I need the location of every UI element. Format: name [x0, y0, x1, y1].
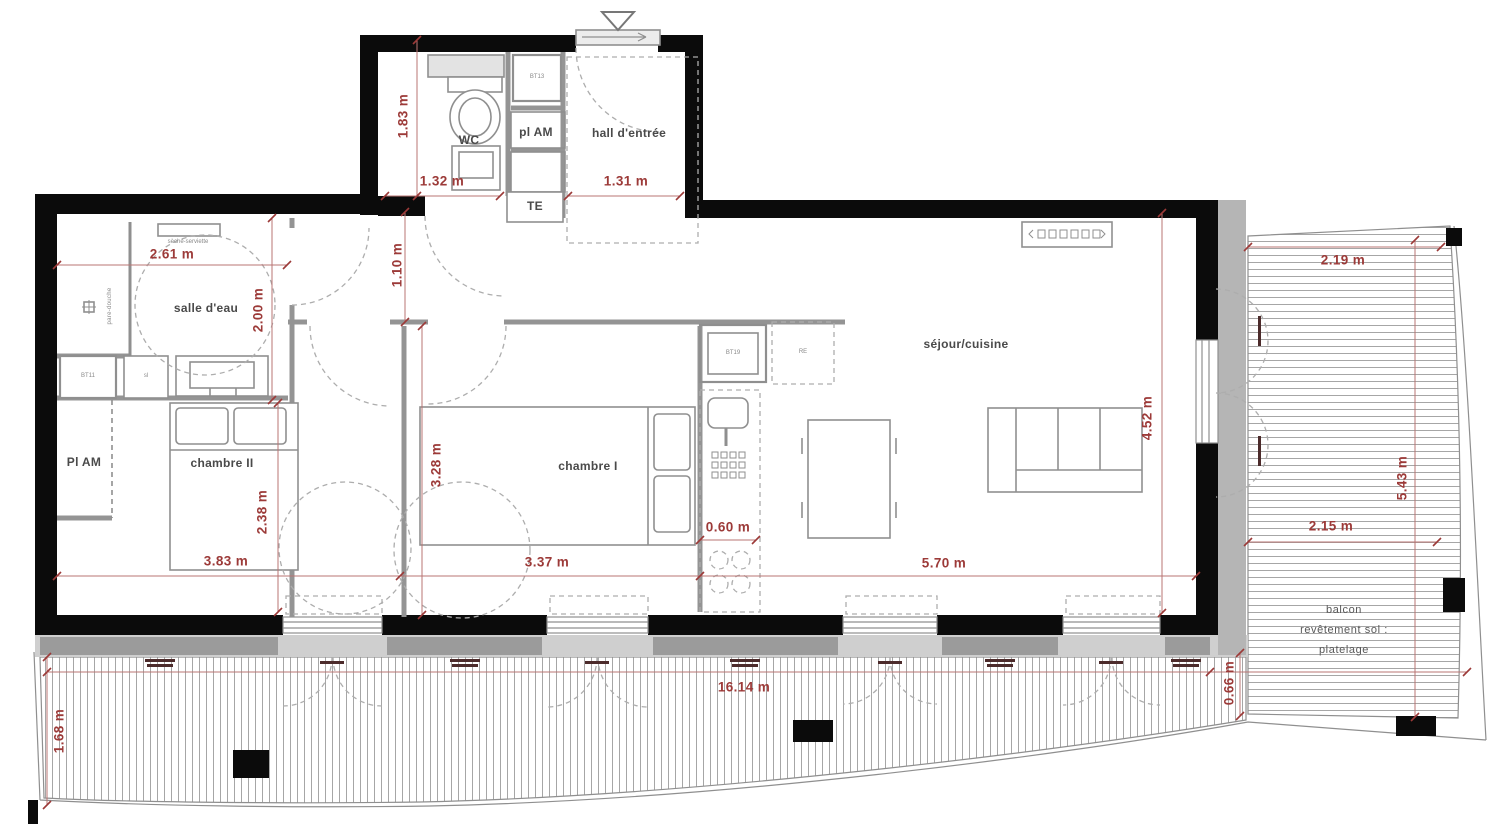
chambre2-door-swing [310, 326, 390, 406]
furniture [60, 12, 1142, 570]
tag-bt13: BT13 [530, 74, 544, 80]
room-label-pl-am-left: Pl AM [67, 455, 101, 469]
bed-chambre1 [420, 407, 695, 545]
label-pare-douche: pare-douche [107, 288, 113, 325]
tag-bt11: BT11 [81, 373, 95, 379]
floor-plan: WC pl AM hall d'entrée TE salle d'eau sè… [0, 0, 1500, 837]
floor-plan-drawing [0, 0, 1500, 837]
room-label-salle-deau: salle d'eau [174, 301, 238, 315]
dim-4-52: 4.52 m [1140, 396, 1155, 440]
label-balcon-2: revêtement sol : [1300, 624, 1388, 636]
dim-2-38: 2.38 m [255, 490, 270, 534]
dim-0-66: 0.66 m [1222, 661, 1237, 705]
room-label-sejour: séjour/cuisine [924, 337, 1009, 351]
dim-5-43: 5.43 m [1395, 456, 1410, 500]
entrance-arrow-icon [602, 12, 634, 30]
room-label-te: TE [527, 199, 543, 213]
room-label-chambre2: chambre II [190, 456, 253, 470]
dim-1-32: 1.32 m [420, 174, 464, 189]
label-balcon-3: platelage [1319, 644, 1369, 656]
entrance-door [576, 12, 660, 45]
dim-2-19: 2.19 m [1321, 253, 1365, 268]
label-balcon-1: balcon [1326, 604, 1362, 616]
dim-0-60: 0.60 m [706, 520, 750, 535]
entrance-door-swing [576, 48, 660, 132]
room-label-chambre1: chambre I [558, 459, 617, 473]
sofa [988, 408, 1142, 492]
dim-16-14: 16.14 m [718, 680, 770, 695]
dim-3-83: 3.83 m [204, 554, 248, 569]
tag-bt19: BT19 [726, 350, 740, 356]
tag-re: RE [799, 349, 807, 355]
dim-2-00: 2.00 m [251, 288, 266, 332]
dining-table [802, 420, 896, 538]
dim-1-31: 1.31 m [604, 174, 648, 189]
tag-sl: sl [144, 373, 148, 379]
dim-3-28: 3.28 m [429, 443, 444, 487]
wc-door-swing [425, 216, 505, 296]
dim-2-15: 2.15 m [1309, 519, 1353, 534]
dim-5-70: 5.70 m [922, 556, 966, 571]
radiator [1022, 222, 1112, 247]
dim-1-83: 1.83 m [396, 94, 411, 138]
room-label-pl-am-top: pl AM [519, 125, 553, 139]
dim-1-10: 1.10 m [390, 243, 405, 287]
label-seche-serviette: sèche-serviette [168, 239, 209, 245]
hall-floor-outline [567, 57, 698, 243]
dim-2-61: 2.61 m [150, 247, 194, 262]
bathroom-door-swing [292, 228, 369, 305]
room-label-hall: hall d'entrée [592, 126, 666, 140]
dim-3-37: 3.37 m [525, 555, 569, 570]
wc-fixtures [428, 55, 504, 190]
room-label-wc: WC [459, 133, 480, 147]
dim-1-68: 1.68 m [52, 709, 67, 753]
kitchen [700, 325, 766, 478]
chambre1-door-swing [428, 326, 506, 404]
